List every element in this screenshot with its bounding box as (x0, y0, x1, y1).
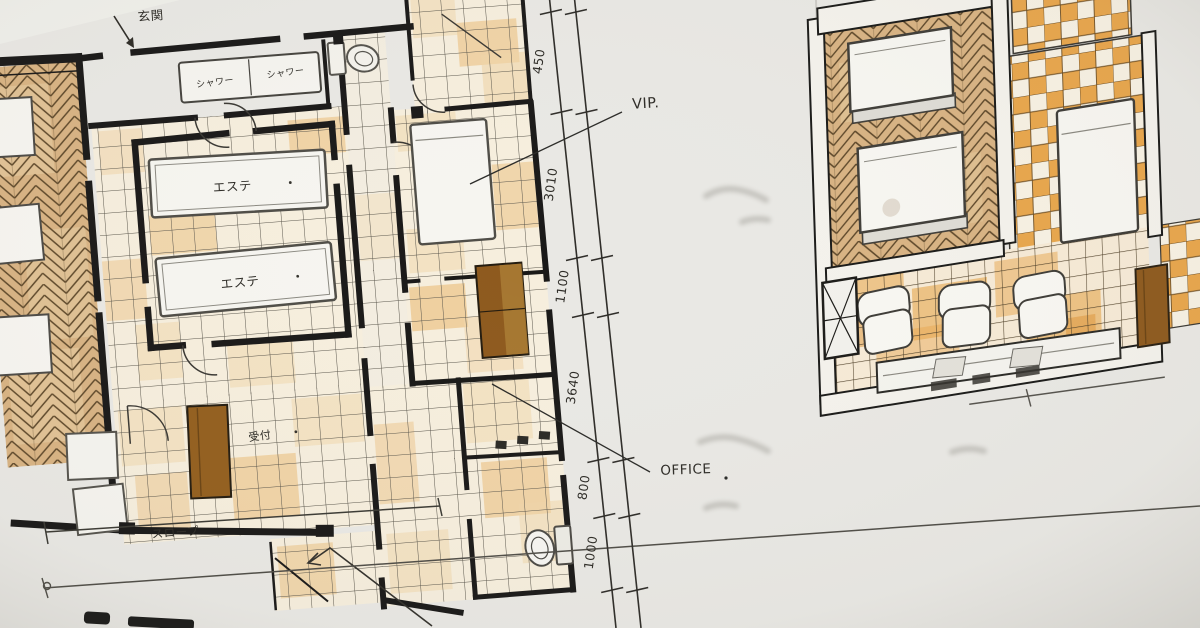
sketch-canvas: シャワー シャワー エステ エステ (0, 0, 1200, 628)
floorplan-sketch-photo: シャワー シャワー エステ エステ (0, 0, 1200, 628)
photo-vignette (0, 0, 1200, 628)
